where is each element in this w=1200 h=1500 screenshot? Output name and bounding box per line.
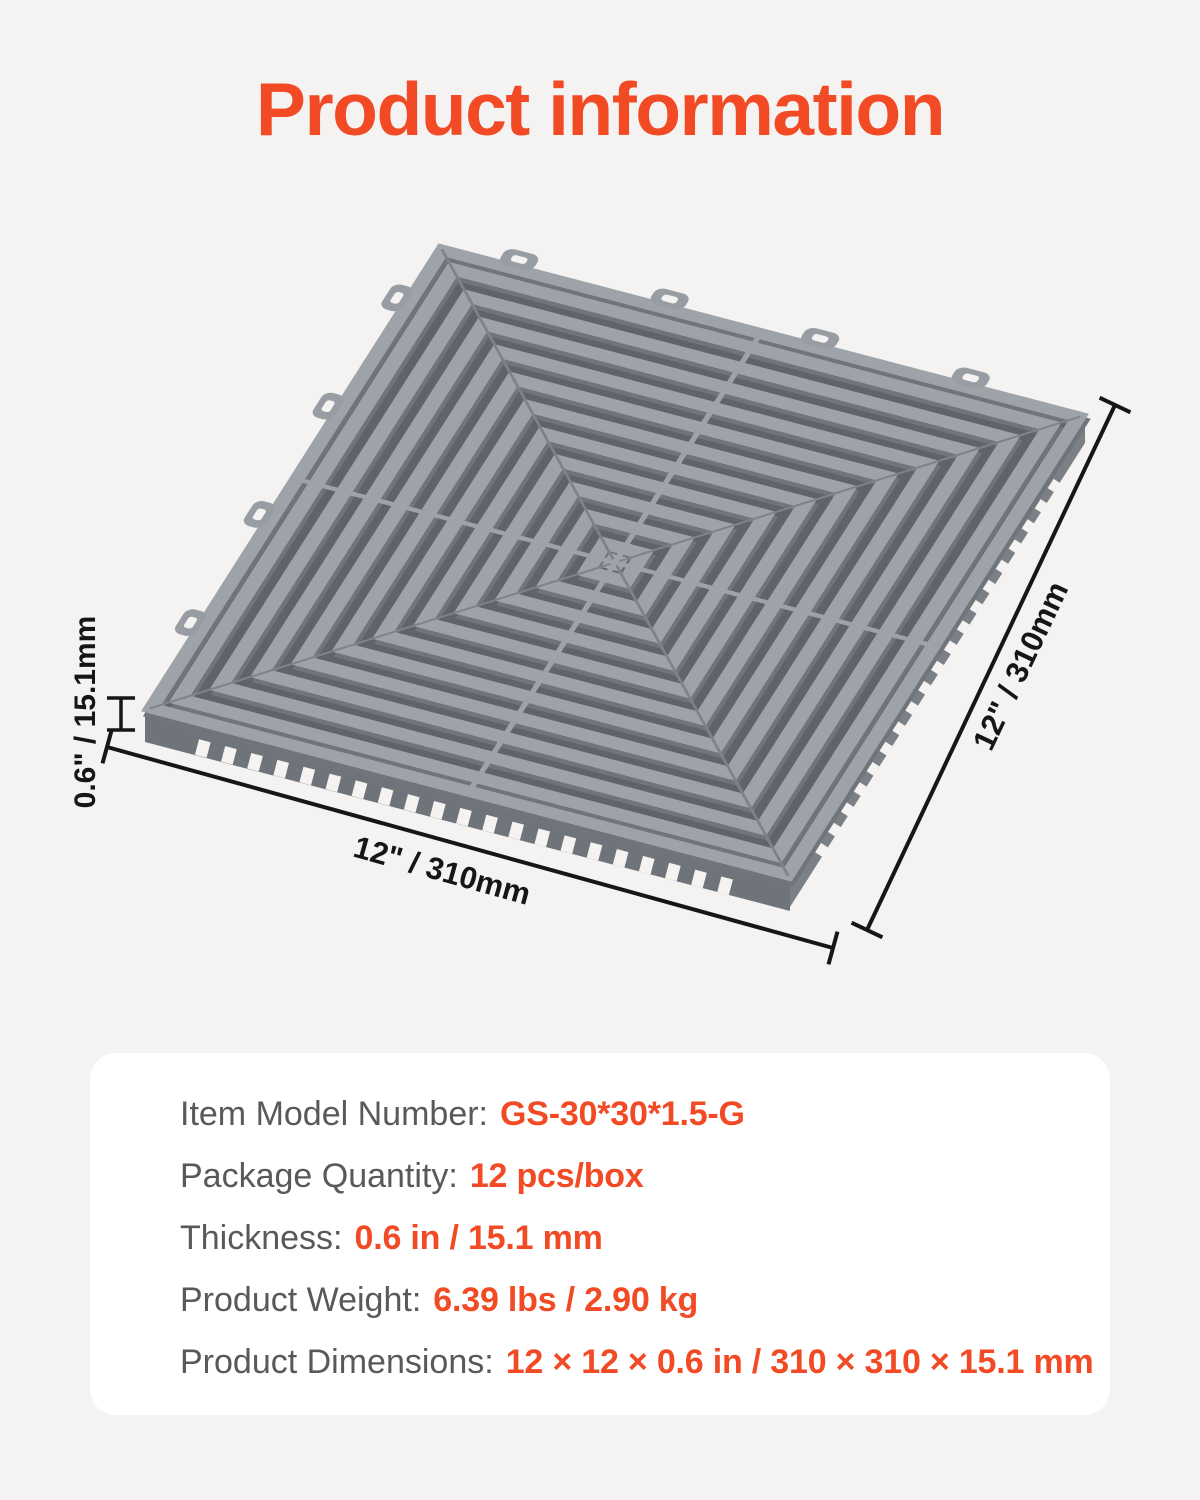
- tile-side-faces: [145, 415, 1085, 911]
- spec-label: Product Weight:: [180, 1281, 421, 1320]
- spec-value: 0.6 in / 15.1 mm: [355, 1219, 603, 1258]
- dimension-bracket-thickness: [107, 698, 135, 730]
- dimension-line-width: [103, 731, 838, 965]
- spec-value: 12 pcs/box: [470, 1157, 644, 1196]
- spec-value: 6.39 lbs / 2.90 kg: [433, 1281, 698, 1320]
- spec-label: Item Model Number:: [180, 1095, 488, 1134]
- spec-row: Item Model Number: GS-30*30*1.5-G: [180, 1093, 1110, 1136]
- infographic-page: Product information: [0, 0, 1200, 1500]
- interlock-tabs: [172, 227, 993, 780]
- spec-label: Package Quantity:: [180, 1157, 458, 1196]
- spec-row: Package Quantity: 12 pcs/box: [180, 1155, 1110, 1198]
- spec-row: Thickness: 0.6 in / 15.1 mm: [180, 1217, 1110, 1260]
- spec-value: 12 × 12 × 0.6 in / 310 × 310 × 15.1 mm: [506, 1343, 1094, 1382]
- page-title: Product information: [0, 70, 1200, 149]
- dimension-line-depth: [852, 398, 1131, 938]
- dimension-label-thickness: 0.6" / 15.1mm: [69, 616, 103, 809]
- dimension-label-depth: 12" / 310mm: [966, 576, 1076, 756]
- dimension-label-width: 12" / 310mm: [350, 829, 535, 913]
- spec-label: Thickness:: [180, 1219, 343, 1258]
- tile-top-face: [125, 227, 1094, 880]
- spec-value: GS-30*30*1.5-G: [500, 1095, 745, 1134]
- spec-row: Product Dimensions: 12 × 12 × 0.6 in / 3…: [180, 1341, 1110, 1384]
- spec-row: Product Weight: 6.39 lbs / 2.90 kg: [180, 1279, 1110, 1322]
- spec-label: Product Dimensions:: [180, 1343, 494, 1382]
- product-specs-card: Item Model Number: GS-30*30*1.5-G Packag…: [90, 1053, 1110, 1415]
